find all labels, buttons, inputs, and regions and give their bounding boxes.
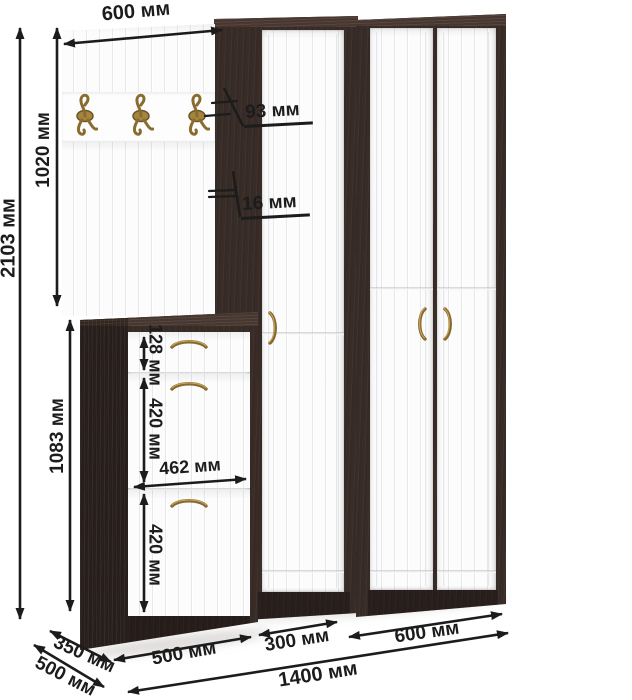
hook-offset-tick — [212, 101, 237, 103]
dim-panel-height-label: 1020 мм — [33, 112, 55, 188]
dim-hook-offset-label: 93 мм — [243, 98, 313, 128]
hook-offset-leader — [224, 88, 243, 126]
dim-shoe-cabinet-height-label: 1083 мм — [47, 398, 69, 474]
dim-panel-width-arrow — [64, 30, 222, 44]
dim-upper-flap-label: 420 мм — [145, 398, 166, 460]
dim-panel-thickness-label: 16 мм — [240, 190, 310, 220]
thickness-tick — [209, 190, 236, 191]
dim-total-height-label: 2103 мм — [0, 198, 21, 278]
dim-inner-width-arrow — [134, 479, 246, 487]
dim-drawer-height-label: 128 мм — [145, 324, 166, 386]
furniture-dimension-diagram: 600 мм 2103 мм 1020 мм 1083 мм 93 мм 16 … — [0, 0, 632, 700]
dimension-arrows-layer — [0, 0, 632, 700]
dim-lower-flap-label: 420 мм — [145, 524, 166, 586]
thickness-tick — [209, 196, 236, 197]
hook-offset-tick — [205, 114, 230, 116]
dim-inner-width-label: 462 мм — [159, 454, 222, 479]
